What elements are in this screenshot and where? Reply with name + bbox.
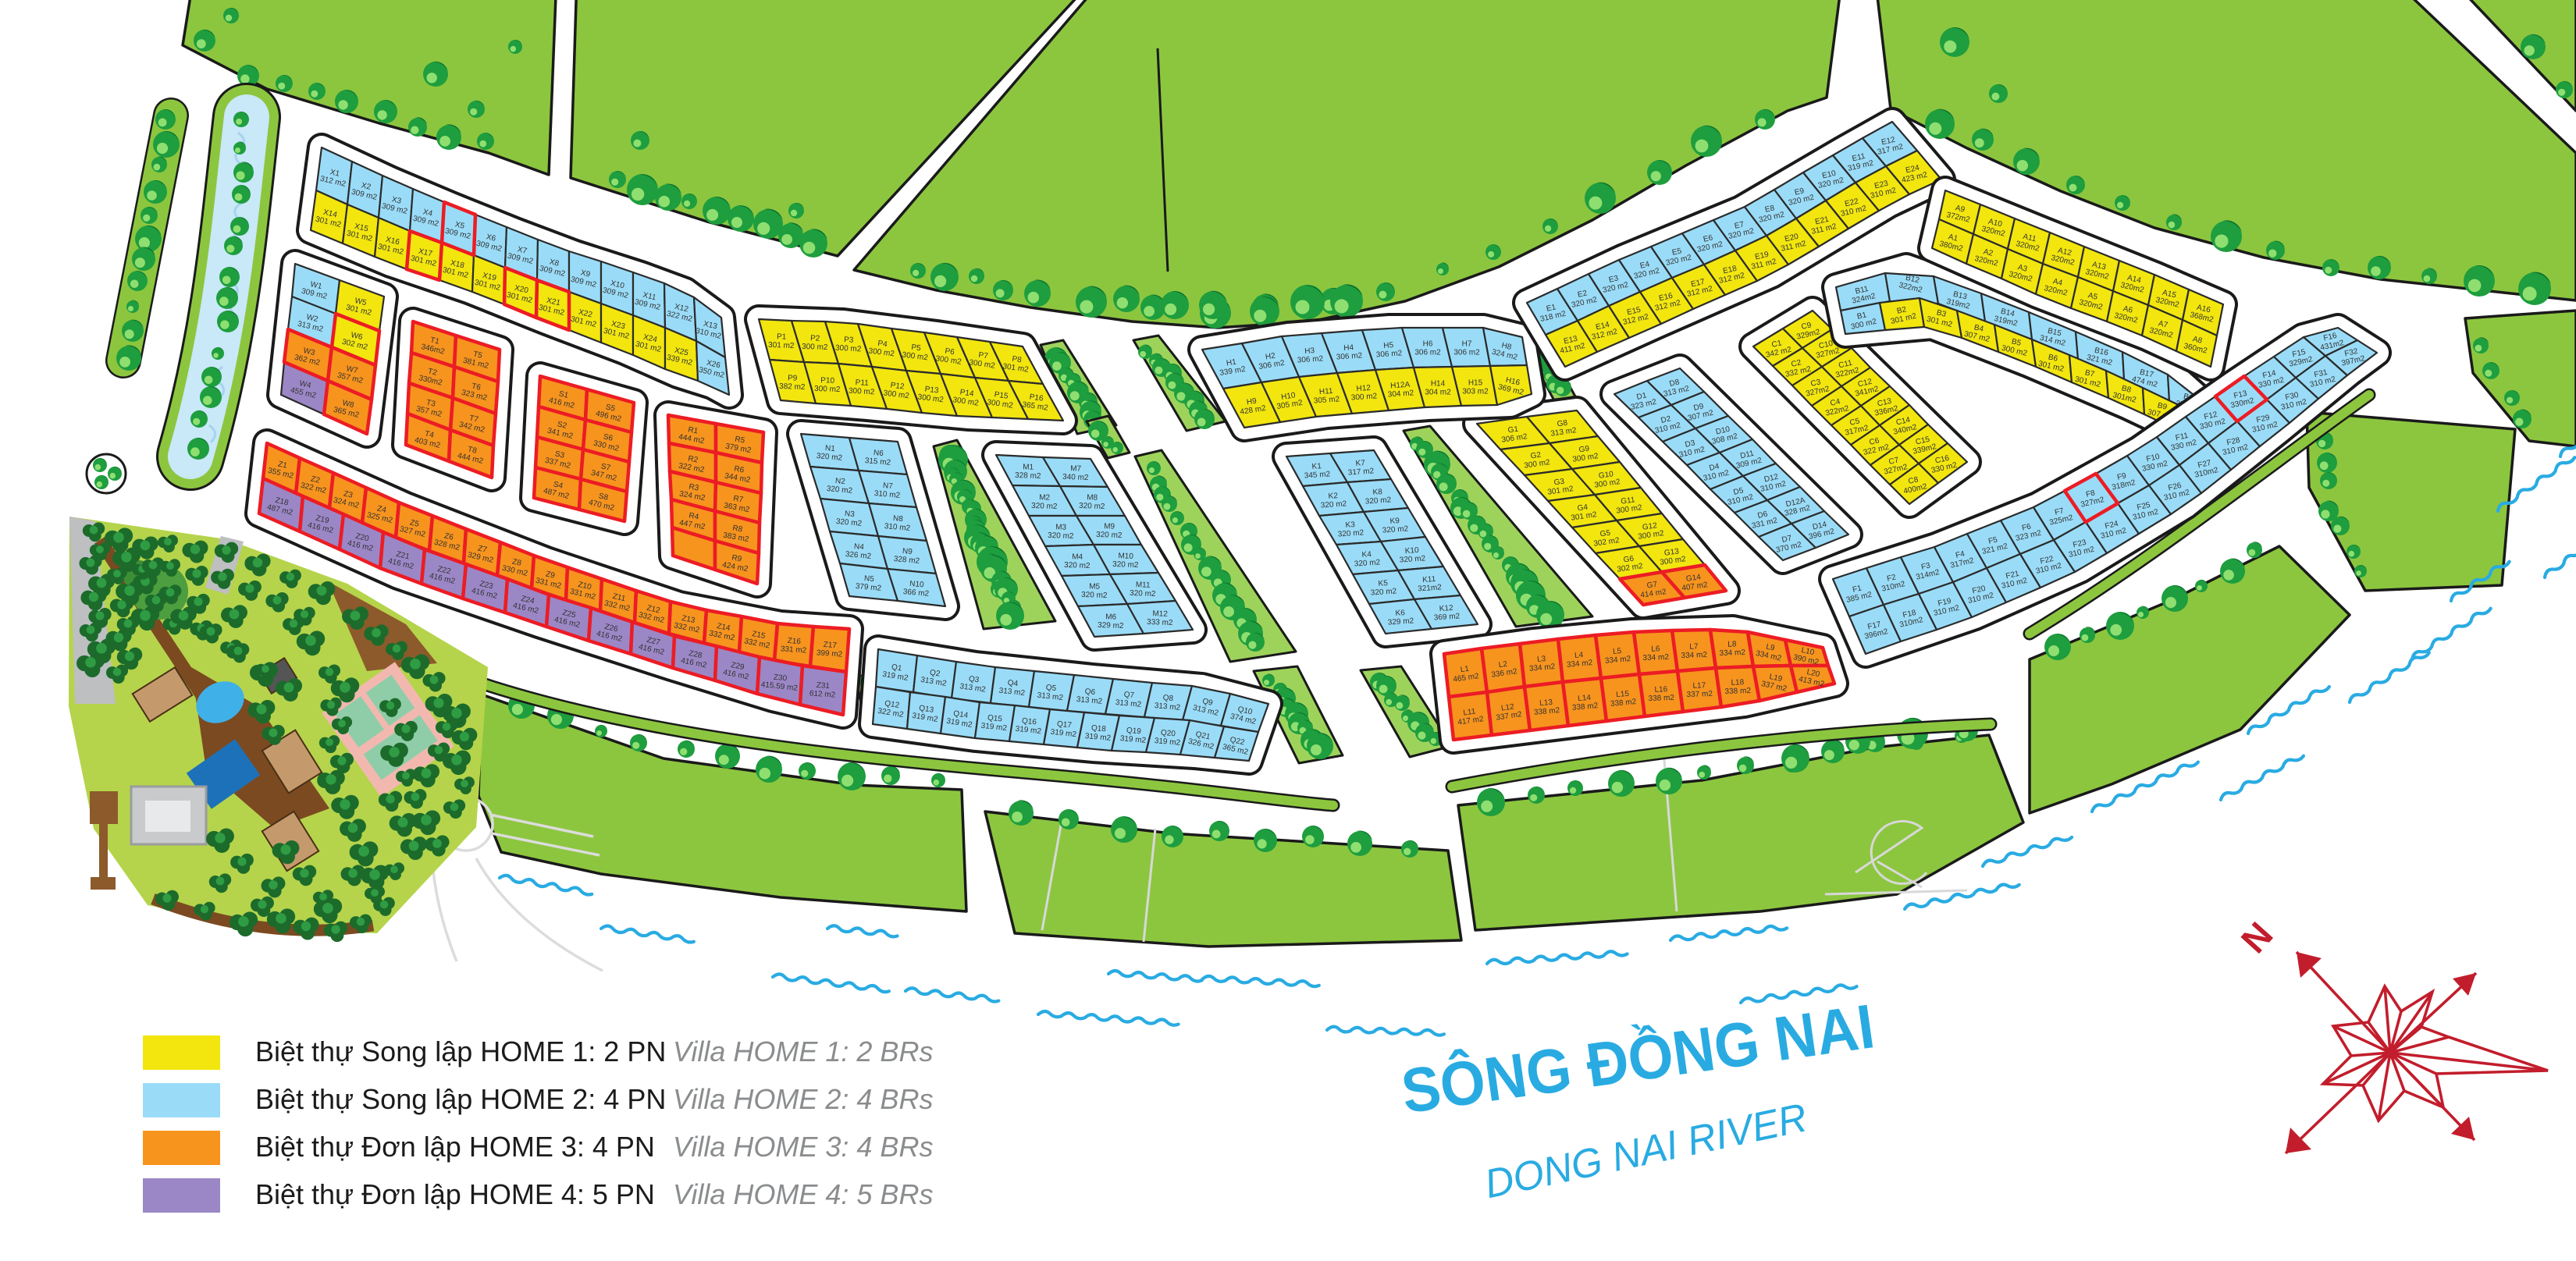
svg-text:Villa HOME 1: 2 BRs: Villa HOME 1: 2 BRs [673, 1035, 933, 1067]
svg-text:Biệt thự Đơn lập HOME 4: 5 PN: Biệt thự Đơn lập HOME 4: 5 PN [255, 1178, 655, 1210]
svg-text:Villa HOME 2: 4 BRs: Villa HOME 2: 4 BRs [673, 1083, 933, 1115]
svg-text:Biệt thự Song lập HOME 1: 2 PN: Biệt thự Song lập HOME 1: 2 PN [255, 1035, 666, 1067]
svg-text:Villa HOME 3: 4 BRs: Villa HOME 3: 4 BRs [673, 1131, 933, 1163]
svg-text:Biệt thự Song lập HOME 2: 4 PN: Biệt thự Song lập HOME 2: 4 PN [255, 1083, 666, 1115]
svg-text:Biệt thự Đơn lập HOME 3: 4 PN: Biệt thự Đơn lập HOME 3: 4 PN [255, 1131, 655, 1163]
svg-text:Villa HOME 4: 5 BRs: Villa HOME 4: 5 BRs [673, 1178, 933, 1210]
